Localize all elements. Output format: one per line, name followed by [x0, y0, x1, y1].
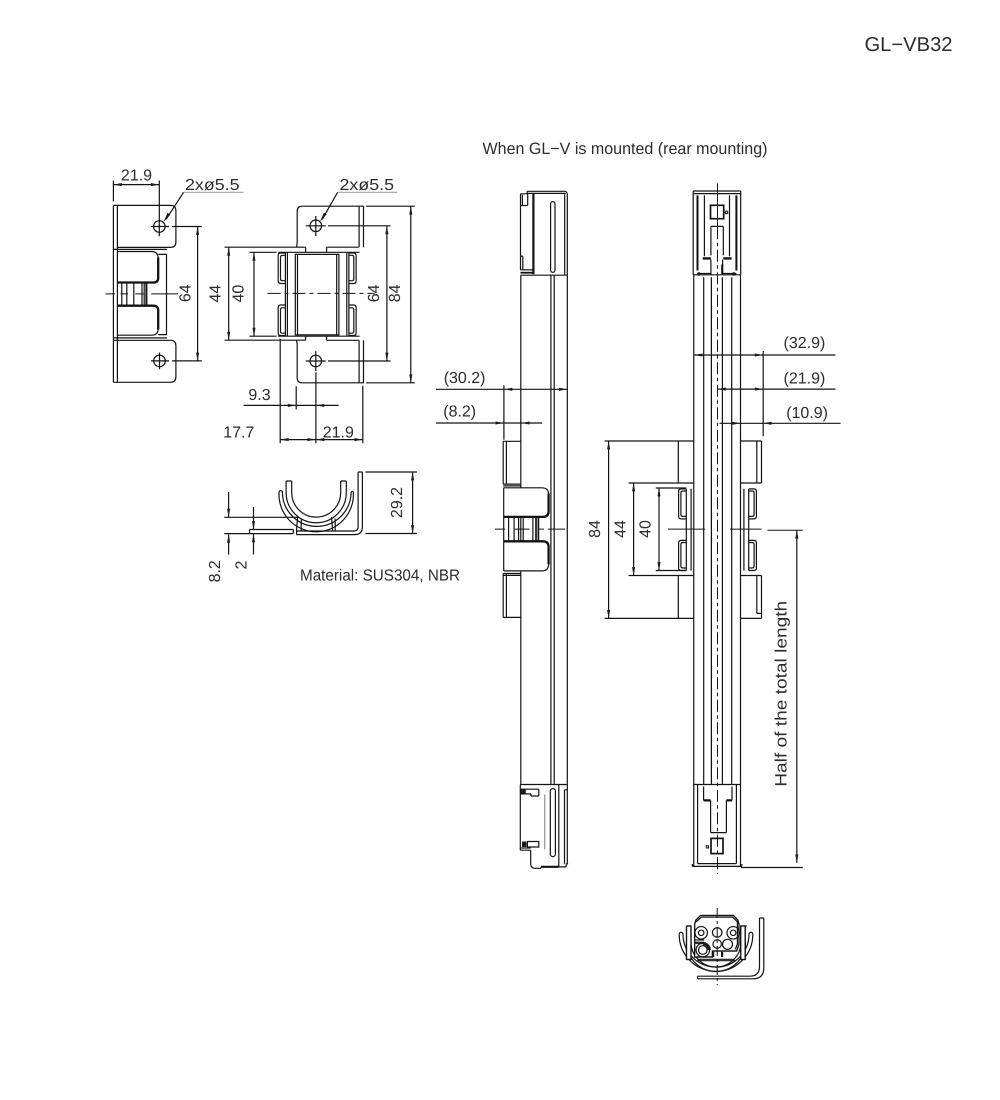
svg-text:17.7: 17.7: [223, 424, 254, 441]
svg-text:40: 40: [230, 285, 247, 303]
svg-text:(10.9): (10.9): [786, 405, 828, 422]
svg-text:44: 44: [208, 285, 225, 303]
svg-text:21.9: 21.9: [121, 168, 152, 185]
svg-text:Half of the total length: Half of the total length: [772, 601, 790, 787]
svg-text:(8.2): (8.2): [443, 404, 476, 421]
svg-text:8.2: 8.2: [207, 560, 224, 582]
svg-text:2xø5.5: 2xø5.5: [185, 177, 240, 194]
svg-text:(32.9): (32.9): [784, 335, 826, 352]
svg-text:29.2: 29.2: [389, 487, 406, 518]
svg-text:GL−VB32: GL−VB32: [865, 34, 953, 56]
svg-text:44: 44: [613, 520, 630, 538]
svg-text:9.3: 9.3: [248, 387, 270, 404]
svg-text:2: 2: [234, 560, 251, 569]
svg-text:21.9: 21.9: [323, 425, 354, 442]
svg-text:64: 64: [178, 284, 195, 302]
svg-text:84: 84: [587, 520, 604, 538]
svg-text:(21.9): (21.9): [784, 370, 826, 387]
svg-text:2xø5.5: 2xø5.5: [340, 177, 395, 194]
svg-text:(30.2): (30.2): [444, 370, 486, 387]
svg-text:84: 84: [387, 284, 404, 302]
svg-text:64: 64: [366, 284, 383, 302]
svg-text:40: 40: [638, 520, 655, 538]
svg-text:When GL−V is mounted (rear mou: When GL−V is mounted (rear mounting): [483, 140, 768, 158]
svg-text:Material: SUS304, NBR: Material: SUS304, NBR: [300, 568, 460, 585]
